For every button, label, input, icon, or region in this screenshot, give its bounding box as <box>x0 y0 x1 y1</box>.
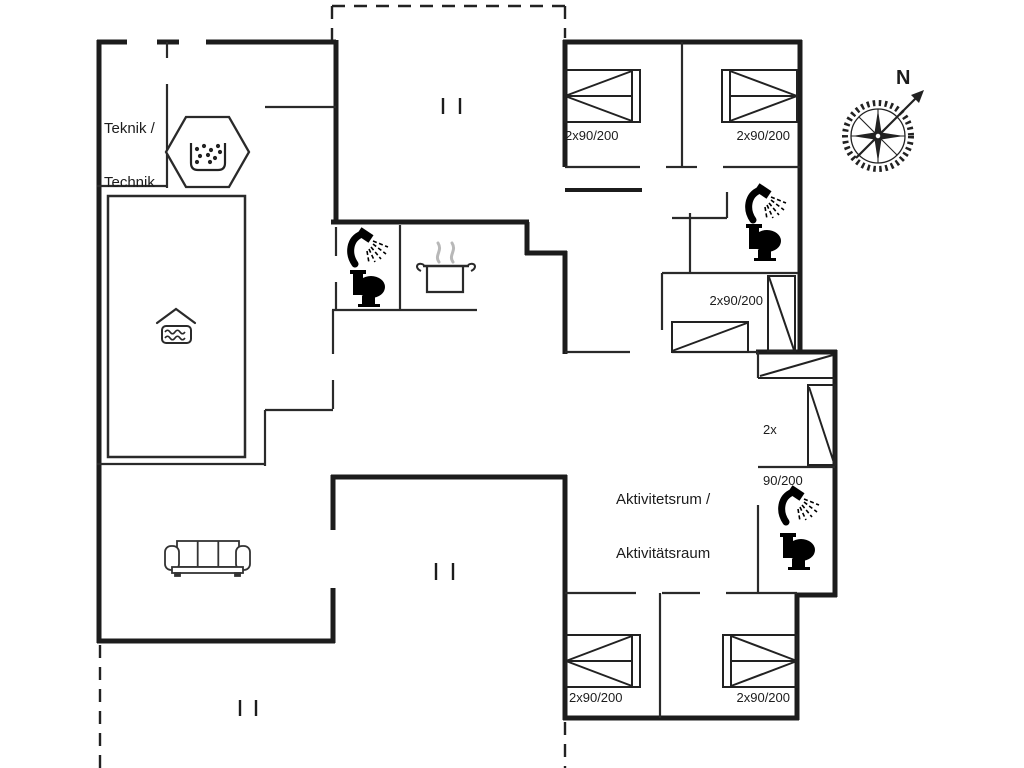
room-label-activity: Aktivitetsrum / Aktivitätsraum <box>616 455 710 599</box>
compass-rose-icon <box>845 90 924 169</box>
bed-double-bottom-left <box>566 635 640 687</box>
toilet-icon <box>746 224 781 261</box>
spa-hexagon <box>166 117 249 187</box>
floor-plan-page: Teknik / Technik Aktivitetsrum / Aktivit… <box>0 0 1024 768</box>
cooking-pot-icon <box>417 243 475 292</box>
bed-double-top-left <box>565 70 640 122</box>
toilet-icon <box>780 533 815 570</box>
swimming-pool <box>108 196 245 457</box>
bathroom-upper-right <box>746 187 786 261</box>
bed-double-bottom-right <box>723 635 797 687</box>
bed-double-top-right <box>722 70 797 122</box>
sofa-icon <box>165 541 250 576</box>
bed-size-label-top-right: 2x90/200 <box>720 127 790 144</box>
bed-size-label-bottom-left: 2x90/200 <box>569 689 623 706</box>
compass-north-label: N <box>896 70 910 87</box>
bathroom-center <box>350 231 388 307</box>
door-opening-ticks <box>240 98 460 716</box>
bed-size-label-bunk-room: 2x 90/200 <box>763 387 803 523</box>
bed-bunk-middle <box>672 276 795 352</box>
toilet-icon <box>350 270 385 307</box>
bed-size-label-top-left: 2x90/200 <box>565 127 619 144</box>
shower-icon <box>351 231 388 264</box>
room-label-technical: Teknik / Technik <box>104 84 155 228</box>
bed-size-label-bottom-right: 2x90/200 <box>720 689 790 706</box>
shower-icon <box>749 187 786 220</box>
bed-size-label-middle: 2x90/200 <box>693 292 763 309</box>
